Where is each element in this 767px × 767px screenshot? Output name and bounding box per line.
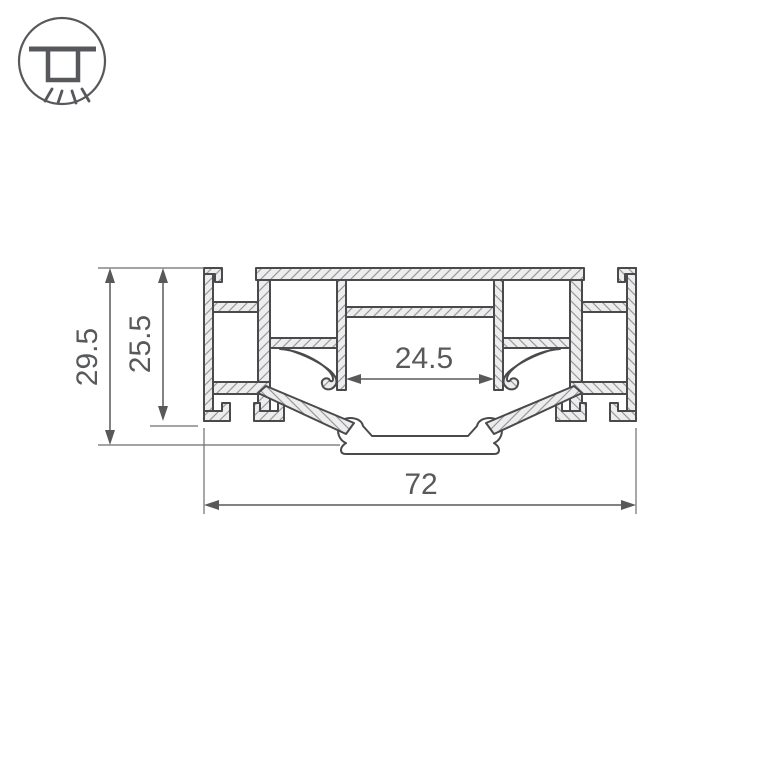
drawing-canvas: 29.5 25.5 24.5 72 [0,0,767,767]
retainer-hook [280,348,336,389]
inner-vertical-wall [258,280,270,421]
recessed-ceiling-light-icon [19,18,105,104]
center-web [346,307,494,317]
top-plate [256,268,584,280]
upper-web [213,302,258,312]
center-chamber-wall [337,280,346,390]
dimension-overall-height-label: 29.5 [71,328,104,386]
dimension-inner-width-label: 24.5 [395,342,453,375]
dimension-inner-width: 24.5 [346,342,494,384]
dimension-overall-height: 29.5 [71,268,115,445]
icon-light-rays [45,89,89,103]
profile-left-half [204,268,354,434]
middle-web [270,338,340,348]
dimension-annotations: 29.5 25.5 24.5 72 [71,268,636,514]
icon-lamp-box [48,49,78,80]
dimension-overall-width-label: 72 [404,468,437,501]
dimension-body-height-label: 25.5 [124,315,157,373]
dimension-body-height: 25.5 [124,268,168,421]
profile-right-half [486,268,636,434]
profile-drawing: 29.5 25.5 24.5 72 [0,0,767,767]
outer-wall [204,268,213,421]
diffuser-trough [338,418,502,454]
dimension-overall-width: 72 [204,468,636,510]
